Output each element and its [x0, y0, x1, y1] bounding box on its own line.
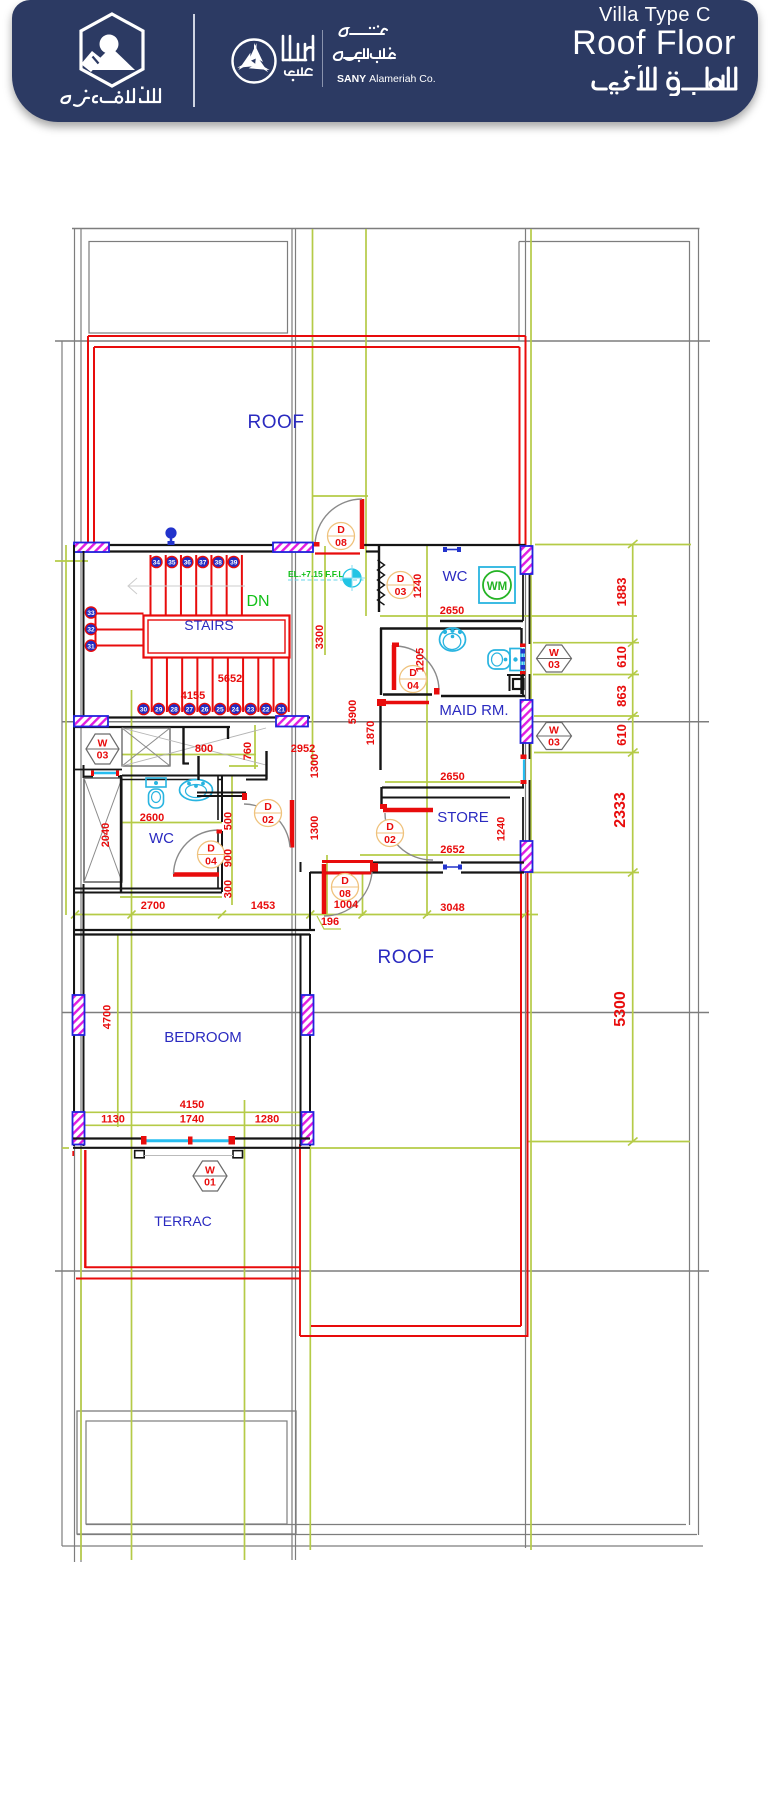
svg-text:D: D — [264, 801, 272, 813]
svg-text:900: 900 — [223, 849, 235, 867]
svg-text:ROOF: ROOF — [248, 412, 305, 433]
svg-text:ROOF: ROOF — [378, 947, 435, 968]
svg-text:4150: 4150 — [180, 1099, 204, 1111]
svg-text:38: 38 — [215, 560, 223, 567]
svg-text:2333: 2333 — [612, 792, 629, 828]
svg-text:34: 34 — [153, 560, 161, 567]
svg-text:WM: WM — [487, 581, 507, 593]
svg-text:01: 01 — [204, 1177, 216, 1189]
svg-text:33: 33 — [87, 610, 95, 617]
svg-text:2040: 2040 — [100, 823, 112, 847]
svg-text:500: 500 — [223, 812, 235, 830]
svg-text:1130: 1130 — [101, 1114, 125, 1126]
svg-text:30: 30 — [140, 707, 148, 714]
svg-text:2600: 2600 — [140, 812, 164, 824]
svg-text:23: 23 — [247, 707, 255, 714]
svg-text:24: 24 — [232, 707, 240, 714]
svg-text:800: 800 — [195, 743, 213, 755]
svg-text:02: 02 — [262, 814, 274, 826]
svg-text:1300: 1300 — [309, 754, 321, 778]
svg-text:5652: 5652 — [218, 673, 242, 685]
svg-text:D: D — [397, 573, 405, 585]
svg-text:32: 32 — [87, 627, 95, 634]
svg-text:1883: 1883 — [614, 578, 629, 607]
svg-text:2700: 2700 — [141, 900, 165, 912]
svg-text:BEDROOM: BEDROOM — [164, 1029, 242, 1046]
svg-text:D: D — [386, 821, 394, 833]
svg-text:03: 03 — [395, 586, 407, 598]
svg-text:4155: 4155 — [181, 690, 205, 702]
svg-text:STAIRS: STAIRS — [184, 617, 234, 633]
svg-text:EL.+7.15 F.F.L: EL.+7.15 F.F.L — [288, 569, 344, 579]
svg-text:DN: DN — [246, 593, 269, 610]
svg-text:D: D — [337, 524, 345, 536]
svg-text:35: 35 — [168, 560, 176, 567]
svg-text:1205: 1205 — [415, 648, 427, 672]
svg-text:5300: 5300 — [612, 991, 629, 1027]
svg-text:W: W — [549, 647, 559, 659]
svg-text:04: 04 — [407, 680, 419, 692]
svg-text:2952: 2952 — [291, 743, 315, 755]
svg-text:03: 03 — [548, 659, 560, 671]
svg-text:1240: 1240 — [496, 817, 508, 841]
svg-text:37: 37 — [199, 560, 207, 567]
svg-text:610: 610 — [614, 646, 629, 668]
svg-text:STORE: STORE — [437, 809, 488, 826]
svg-text:2650: 2650 — [440, 771, 464, 783]
svg-text:863: 863 — [614, 685, 629, 707]
svg-text:MAID RM.: MAID RM. — [439, 702, 508, 719]
svg-text:04: 04 — [205, 856, 217, 868]
svg-text:196: 196 — [321, 916, 339, 928]
svg-text:3300: 3300 — [314, 625, 326, 649]
svg-text:1740: 1740 — [180, 1114, 204, 1126]
svg-text:1300: 1300 — [309, 816, 321, 840]
svg-text:08: 08 — [335, 537, 347, 549]
svg-text:760: 760 — [242, 742, 254, 760]
svg-text:D: D — [207, 842, 215, 854]
svg-text:1004: 1004 — [334, 899, 359, 911]
svg-text:1240: 1240 — [412, 574, 424, 598]
svg-text:28: 28 — [170, 707, 178, 714]
svg-text:29: 29 — [155, 707, 163, 714]
svg-text:TERRAC: TERRAC — [154, 1213, 212, 1229]
svg-text:W: W — [549, 725, 559, 737]
svg-text:1453: 1453 — [251, 900, 275, 912]
svg-text:300: 300 — [223, 880, 235, 898]
svg-text:2650: 2650 — [440, 605, 464, 617]
svg-text:25: 25 — [216, 707, 224, 714]
svg-text:D: D — [341, 875, 349, 887]
svg-text:3048: 3048 — [440, 902, 464, 914]
svg-text:WC: WC — [443, 568, 468, 585]
svg-text:03: 03 — [548, 737, 560, 749]
svg-text:W: W — [98, 738, 108, 750]
svg-text:22: 22 — [262, 707, 270, 714]
svg-text:36: 36 — [184, 560, 192, 567]
svg-text:W: W — [205, 1165, 215, 1177]
svg-text:2652: 2652 — [440, 844, 464, 856]
svg-text:1280: 1280 — [255, 1114, 279, 1126]
svg-text:26: 26 — [201, 707, 209, 714]
svg-text:39: 39 — [230, 560, 238, 567]
svg-text:27: 27 — [186, 707, 194, 714]
svg-text:21: 21 — [278, 707, 286, 714]
svg-text:4700: 4700 — [102, 1005, 114, 1029]
svg-text:610: 610 — [614, 724, 629, 746]
svg-text:02: 02 — [384, 834, 396, 846]
svg-text:03: 03 — [97, 750, 109, 762]
svg-text:WC: WC — [149, 830, 174, 847]
svg-text:1870: 1870 — [365, 721, 377, 745]
svg-text:31: 31 — [87, 643, 95, 650]
svg-text:5900: 5900 — [347, 700, 359, 724]
